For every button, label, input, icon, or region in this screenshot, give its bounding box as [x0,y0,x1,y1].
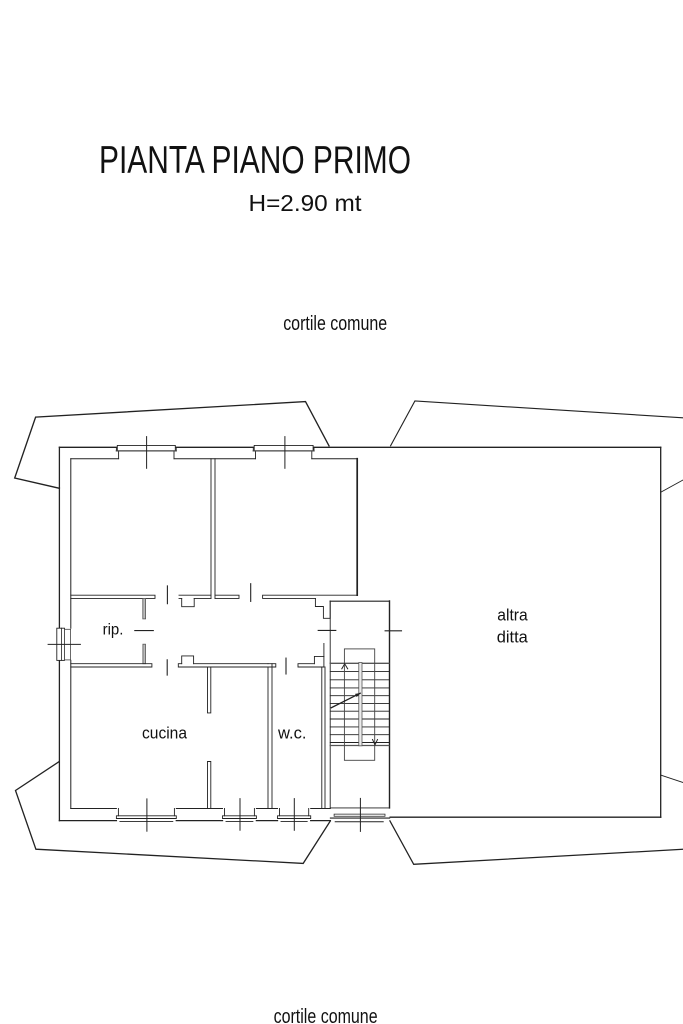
svg-text:rip.: rip. [103,622,124,639]
svg-text:PIANTA PIANO PRIMO: PIANTA PIANO PRIMO [99,139,411,182]
svg-text:ditta: ditta [497,629,529,647]
svg-text:H=2.90 mt: H=2.90 mt [249,190,362,216]
svg-text:altra: altra [497,607,528,625]
svg-text:cortile comune: cortile comune [283,313,387,335]
svg-text:cortile comune: cortile comune [274,1006,378,1024]
svg-text:cucina: cucina [142,725,188,743]
svg-text:w.c.: w.c. [277,723,306,742]
